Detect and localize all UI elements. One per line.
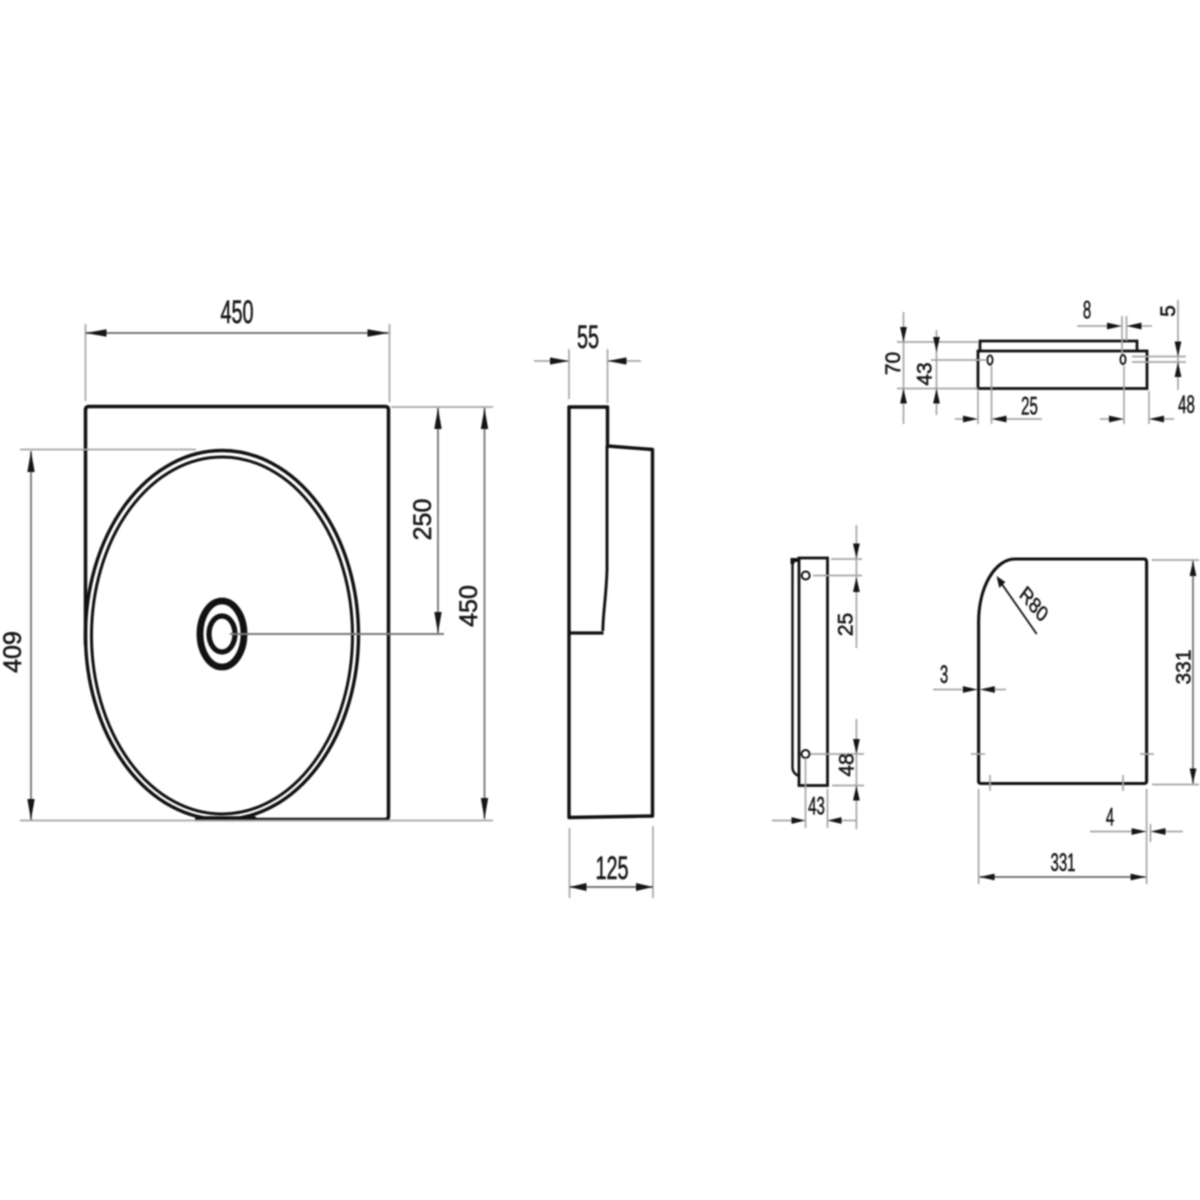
svg-text:125: 125	[595, 850, 628, 886]
svg-text:450: 450	[455, 585, 483, 627]
svg-text:55: 55	[577, 319, 599, 355]
svg-text:4: 4	[1106, 804, 1114, 832]
svg-text:48: 48	[1178, 391, 1195, 419]
svg-text:8: 8	[1083, 297, 1091, 325]
svg-text:48: 48	[836, 753, 859, 776]
svg-text:43: 43	[914, 362, 937, 385]
svg-text:450: 450	[220, 294, 253, 330]
svg-text:3: 3	[940, 661, 948, 689]
svg-text:70: 70	[882, 352, 905, 375]
svg-text:331: 331	[1173, 649, 1196, 684]
svg-text:250: 250	[409, 499, 437, 541]
svg-text:331: 331	[1050, 849, 1075, 877]
svg-text:25: 25	[835, 613, 858, 636]
svg-text:409: 409	[0, 631, 27, 673]
svg-text:R80: R80	[1016, 582, 1052, 627]
svg-text:43: 43	[808, 793, 825, 821]
svg-text:5: 5	[1157, 305, 1180, 317]
svg-text:25: 25	[1021, 393, 1038, 421]
